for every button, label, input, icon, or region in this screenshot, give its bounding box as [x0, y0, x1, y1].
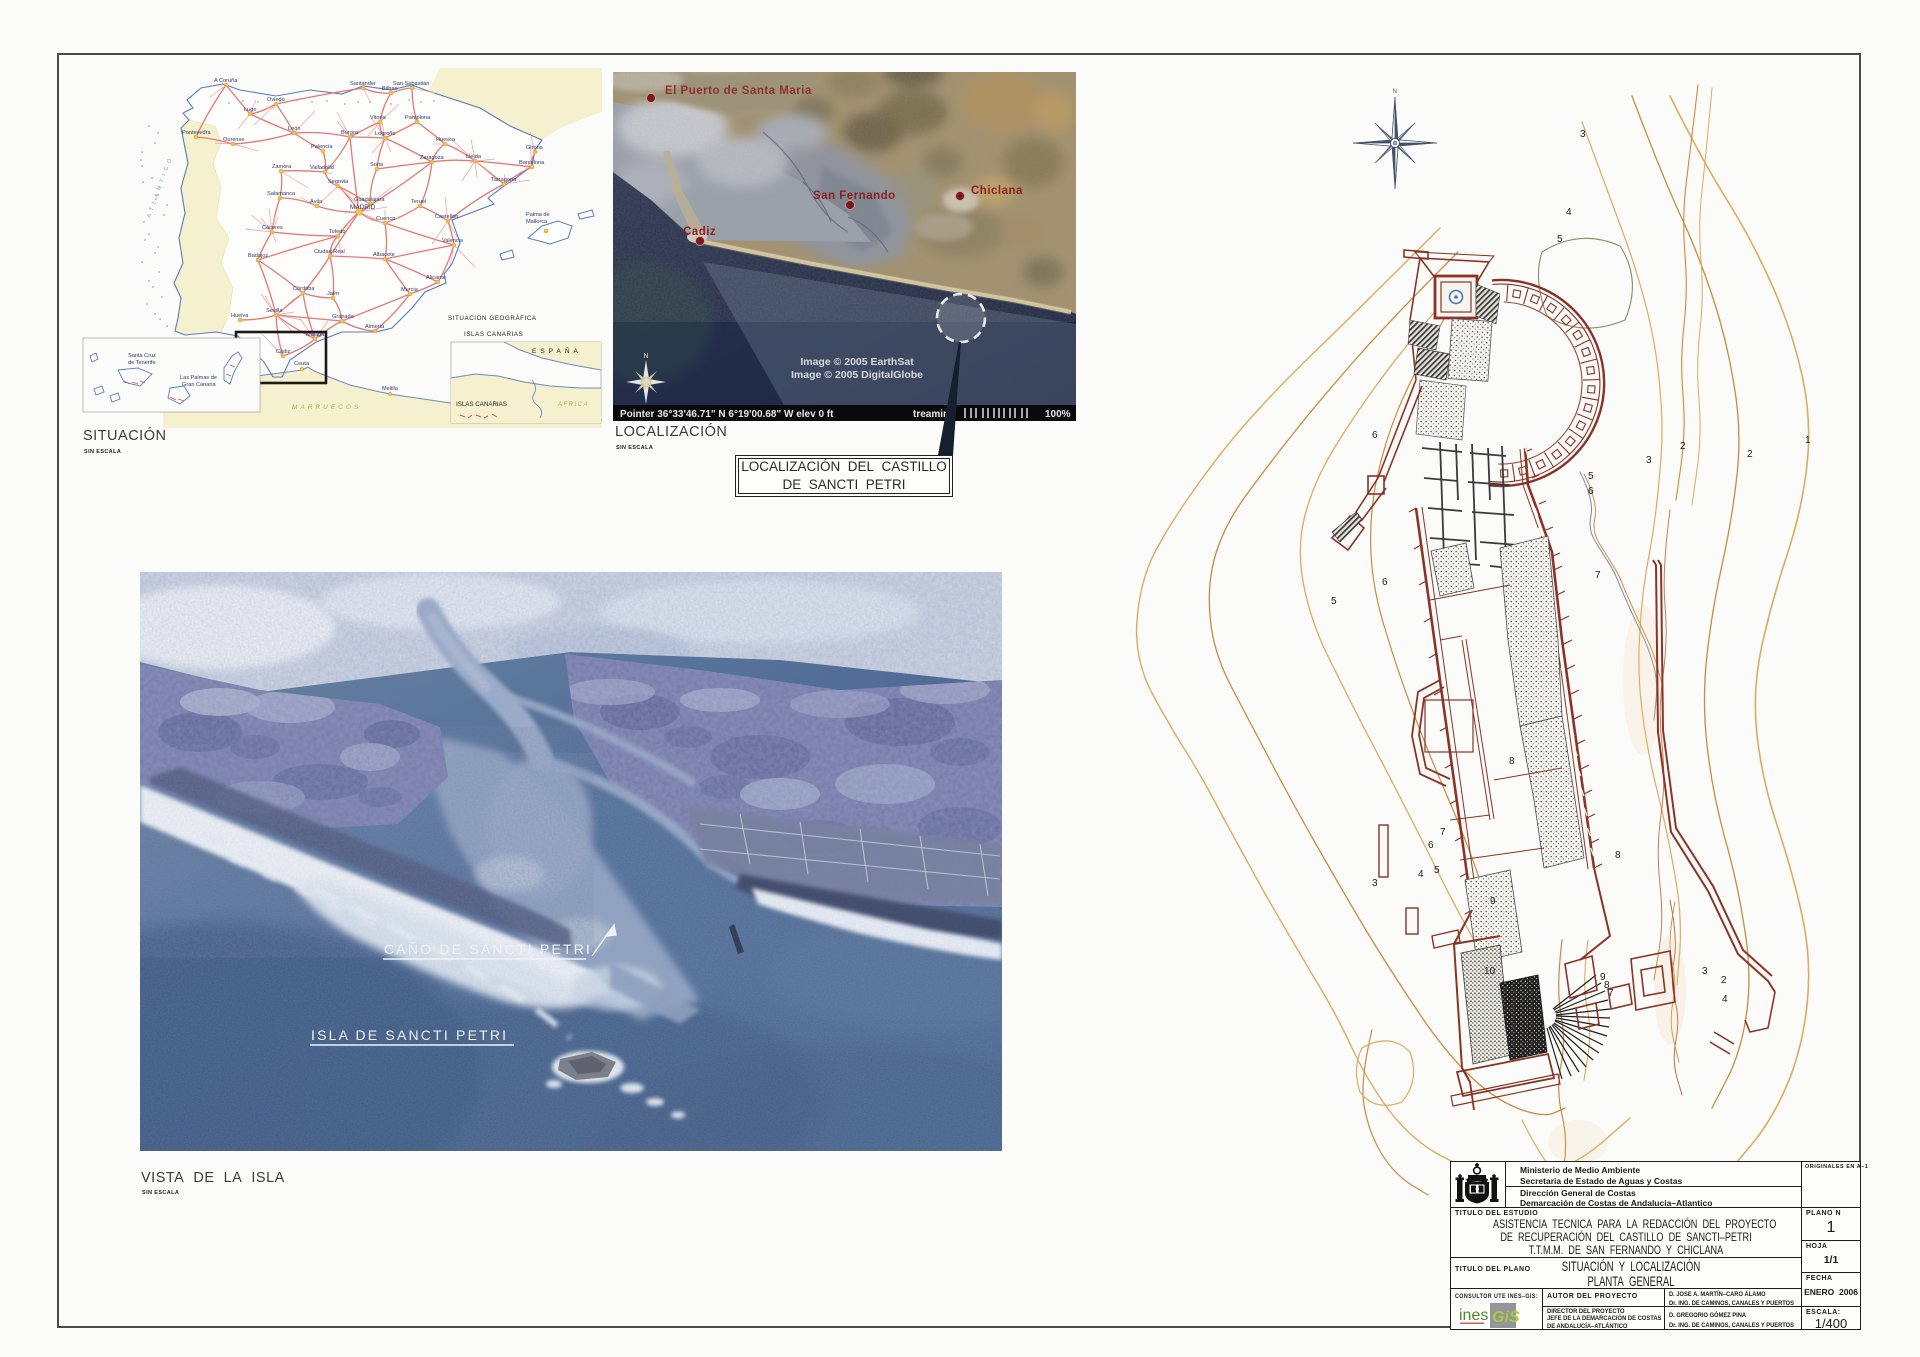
- svg-text:5: 5: [1557, 234, 1563, 245]
- svg-text:CAÑO DE SANCTI PETRI: CAÑO DE SANCTI PETRI: [384, 941, 592, 957]
- svg-text:ISLAS CANARIAS: ISLAS CANARIAS: [464, 331, 523, 338]
- svg-text:Teruel: Teruel: [411, 199, 426, 205]
- svg-text:Ourense: Ourense: [223, 137, 244, 143]
- svg-text:9: 9: [1490, 896, 1496, 907]
- svg-text:León: León: [288, 126, 300, 132]
- svg-text:Lugo: Lugo: [244, 107, 256, 113]
- svg-text:Huesca: Huesca: [436, 137, 456, 143]
- svg-text:Chiclana: Chiclana: [971, 185, 1023, 197]
- svg-text:1: 1: [1805, 435, 1811, 446]
- svg-text:Pontevedra: Pontevedra: [182, 130, 211, 136]
- svg-text:AFRICA: AFRICA: [557, 402, 589, 408]
- svg-text:Pointer 36°33'46.71" N 6°19': Pointer 36°33'46.71" N 6°19'00.68" W ele…: [620, 409, 834, 420]
- svg-text:Ávila: Ávila: [310, 198, 323, 205]
- svg-text:Salamanca: Salamanca: [267, 191, 296, 197]
- svg-text:El Puerto de Santa Maria: El Puerto de Santa Maria: [665, 85, 812, 97]
- svg-text:Huelva: Huelva: [231, 313, 249, 319]
- svg-text:5: 5: [1434, 865, 1440, 876]
- svg-text:2: 2: [1680, 441, 1686, 452]
- svg-text:Alicante: Alicante: [426, 275, 446, 281]
- svg-text:2: 2: [1747, 449, 1753, 460]
- svg-text:6: 6: [1588, 486, 1594, 497]
- svg-text:Santa Cruz: Santa Cruz: [128, 353, 156, 359]
- svg-text:GiS: GiS: [1492, 1309, 1520, 1326]
- svg-text:Zaragoza: Zaragoza: [420, 155, 445, 161]
- svg-text:6: 6: [1372, 430, 1378, 441]
- svg-text:Guadalajara: Guadalajara: [354, 197, 385, 203]
- svg-text:3: 3: [1702, 966, 1708, 977]
- svg-text:Oviedo: Oviedo: [267, 97, 285, 103]
- svg-text:Castellón: Castellón: [435, 214, 458, 220]
- svg-text:ATLANTICO: ATLANTICO: [146, 154, 174, 219]
- svg-text:Pamplona: Pamplona: [405, 115, 431, 121]
- svg-text:de Tenerife: de Tenerife: [128, 360, 156, 366]
- svg-text:Córdoba: Córdoba: [293, 286, 315, 292]
- svg-text:ines: ines: [1459, 1307, 1488, 1324]
- svg-text:N: N: [644, 353, 649, 360]
- svg-text:Ceuta: Ceuta: [294, 361, 310, 367]
- svg-text:SITUACION GEOGRÁFICA: SITUACION GEOGRÁFICA: [448, 315, 537, 322]
- svg-text:100%: 100%: [1045, 409, 1071, 420]
- svg-text:3: 3: [1580, 129, 1586, 140]
- svg-text:Cádiz: Cádiz: [276, 349, 291, 355]
- svg-text:4: 4: [1566, 207, 1572, 218]
- svg-text:ESPAÑA: ESPAÑA: [532, 346, 582, 355]
- svg-text:Cuenca: Cuenca: [376, 216, 396, 222]
- svg-text:Palma de: Palma de: [526, 212, 550, 218]
- svg-text:10: 10: [1484, 966, 1496, 977]
- svg-text:Gran Canaria: Gran Canaria: [182, 382, 216, 388]
- svg-text:Las Palmas de: Las Palmas de: [180, 375, 217, 381]
- svg-text:Toledo: Toledo: [329, 229, 345, 235]
- svg-text:Valladolid: Valladolid: [310, 165, 334, 171]
- svg-text:4: 4: [1418, 869, 1424, 880]
- svg-text:Image © 2005 DigitalGlobe: Image © 2005 DigitalGlobe: [791, 369, 923, 381]
- svg-text:8: 8: [1615, 850, 1621, 861]
- svg-text:Burgos: Burgos: [341, 130, 359, 136]
- svg-text:Jaén: Jaén: [327, 291, 339, 297]
- svg-text:Ciudad Real: Ciudad Real: [314, 249, 345, 255]
- svg-text:Palencia: Palencia: [311, 144, 333, 150]
- svg-text:7: 7: [1595, 570, 1601, 581]
- svg-text:Segovia: Segovia: [328, 179, 349, 185]
- svg-text:Logroño: Logroño: [375, 131, 396, 137]
- svg-text:Santander: Santander: [350, 81, 376, 87]
- svg-text:Lleida: Lleida: [466, 154, 482, 160]
- svg-text:MADRID: MADRID: [350, 204, 376, 211]
- svg-text:Barcelona: Barcelona: [519, 160, 545, 166]
- svg-text:Valencia: Valencia: [442, 238, 464, 244]
- svg-text:7: 7: [1440, 827, 1446, 838]
- svg-text:Sevilla: Sevilla: [266, 308, 283, 314]
- svg-text:7: 7: [1608, 988, 1614, 999]
- svg-text:ISLAS CANARIAS: ISLAS CANARIAS: [456, 401, 507, 408]
- svg-text:Granada: Granada: [332, 314, 355, 320]
- svg-text:Vitoria: Vitoria: [370, 115, 387, 121]
- svg-text:ISLA DE SANCTI PETRI: ISLA DE SANCTI PETRI: [311, 1027, 508, 1043]
- svg-text:Albacete: Albacete: [373, 252, 395, 258]
- svg-text:2: 2: [1721, 975, 1727, 986]
- svg-text:Mallorca: Mallorca: [526, 219, 548, 225]
- svg-text:Soria: Soria: [370, 162, 384, 168]
- svg-text:8: 8: [1509, 756, 1515, 767]
- svg-text:Melilla: Melilla: [382, 386, 399, 392]
- svg-text:3: 3: [1372, 878, 1378, 889]
- svg-text:Zamora: Zamora: [272, 164, 292, 170]
- svg-text:5: 5: [1588, 471, 1594, 482]
- svg-text:N: N: [1393, 89, 1397, 95]
- svg-text:3: 3: [1646, 455, 1652, 466]
- svg-text:Girona: Girona: [526, 145, 544, 151]
- svg-text:MARRUECOS: MARRUECOS: [292, 404, 361, 411]
- svg-text:6: 6: [1382, 577, 1388, 588]
- svg-text:A Coruña: A Coruña: [214, 78, 238, 84]
- svg-text:4: 4: [1722, 994, 1728, 1005]
- svg-text:San Fernando: San Fernando: [813, 190, 896, 202]
- svg-text:Badajoz: Badajoz: [248, 253, 268, 259]
- svg-text:San Sebastián: San Sebastián: [393, 81, 429, 87]
- svg-text:Cáceres: Cáceres: [262, 225, 283, 231]
- svg-text:Almería: Almería: [365, 324, 385, 330]
- svg-text:5: 5: [1331, 596, 1337, 607]
- svg-text:6: 6: [1428, 840, 1434, 851]
- svg-text:Image © 2005 EarthSat: Image © 2005 EarthSat: [800, 356, 914, 368]
- svg-text:Murcia: Murcia: [401, 287, 419, 293]
- svg-text:Tarragona: Tarragona: [491, 177, 517, 183]
